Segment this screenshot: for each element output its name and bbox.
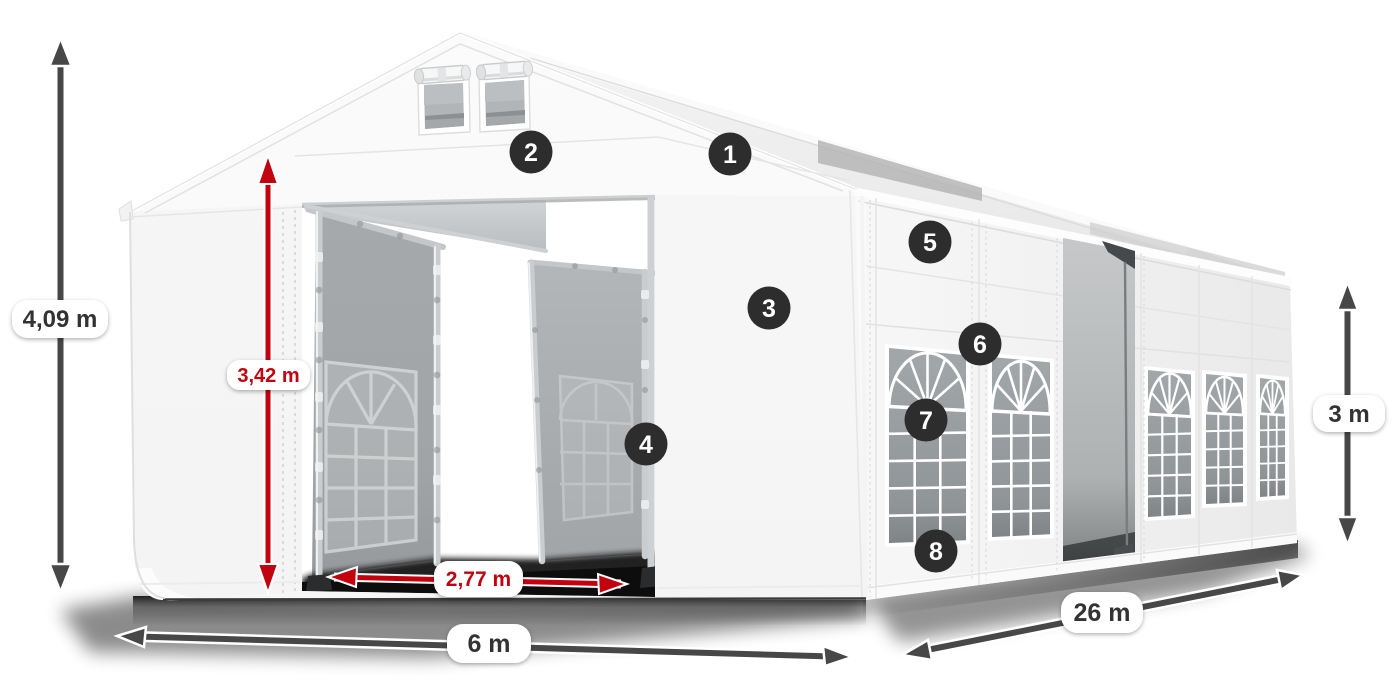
svg-text:5: 5 bbox=[923, 229, 937, 257]
svg-text:7: 7 bbox=[919, 407, 933, 435]
svg-text:2,77 m: 2,77 m bbox=[446, 568, 511, 591]
svg-text:26 m: 26 m bbox=[1074, 599, 1131, 627]
svg-text:4: 4 bbox=[639, 431, 653, 459]
svg-text:8: 8 bbox=[929, 538, 943, 566]
svg-text:3,42 m: 3,42 m bbox=[237, 365, 299, 387]
svg-text:3: 3 bbox=[762, 295, 776, 323]
svg-text:1: 1 bbox=[723, 141, 737, 169]
svg-text:2: 2 bbox=[524, 139, 538, 167]
svg-text:6 m: 6 m bbox=[467, 630, 510, 658]
svg-text:3 m: 3 m bbox=[1328, 401, 1369, 428]
svg-text:4,09 m: 4,09 m bbox=[23, 306, 98, 333]
svg-text:6: 6 bbox=[973, 331, 987, 359]
